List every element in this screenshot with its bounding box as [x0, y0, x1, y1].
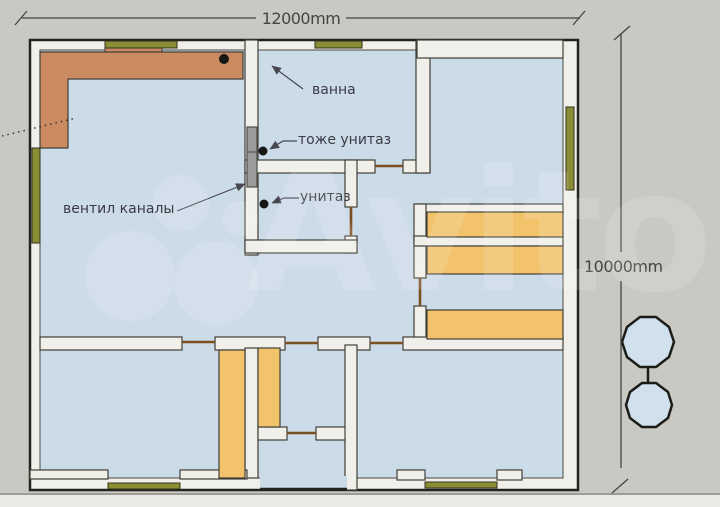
wall-ledge-br-1 [397, 470, 425, 480]
vent-channel [247, 127, 257, 187]
window-left [32, 148, 40, 243]
watermark-dot [85, 231, 175, 321]
wall-main-bottom-3 [318, 337, 370, 350]
floor-plan-image: 12000mm 10000mm ванна тоже унитаз унитаз… [0, 0, 720, 507]
window-bottom-left [108, 483, 180, 489]
label-bath: ванна [312, 83, 356, 98]
wall-porch-left [245, 348, 258, 478]
wall-main-bottom-1 [40, 337, 182, 350]
dimension-width-label: 12000mm [255, 9, 347, 28]
cabinet-strip-2 [258, 348, 280, 427]
watermark-dot [222, 201, 258, 237]
watermark-dot [174, 241, 258, 325]
wall-bath-right [416, 40, 430, 173]
stair-block-2 [427, 246, 563, 274]
floor-plan-drawing [0, 0, 720, 507]
window-top-center [315, 41, 362, 48]
window-right [566, 107, 574, 190]
also-toilet-dot [259, 147, 268, 156]
stair-block-1 [427, 212, 563, 237]
wall-porch-divider-left [258, 427, 287, 440]
dimension-height-label: 10000mm [584, 257, 663, 276]
wall-ledge-bl-1 [30, 470, 108, 479]
sink-dot [219, 54, 229, 64]
wall-porch-divider-right [316, 427, 347, 440]
cabinet-strip-1 [219, 350, 245, 478]
entrance-opening [260, 476, 347, 489]
wall-toilet-bottom [245, 240, 357, 253]
wall-corridor [345, 345, 357, 490]
label-vent-channels: вентил каналы [63, 202, 174, 217]
tree-top [622, 317, 674, 367]
window-top-left [105, 41, 177, 48]
label-also-toilet: тоже унитаз [298, 133, 391, 148]
label-toilet: унитаз [300, 190, 351, 205]
toilet-dot [260, 200, 269, 209]
wall-topright-top [417, 40, 563, 58]
wall-ledge-br-2 [497, 470, 522, 480]
stair-block-3 [427, 310, 563, 339]
tree-bottom [626, 383, 672, 427]
window-bottom-right [425, 482, 497, 488]
bottom-strip [0, 495, 720, 507]
